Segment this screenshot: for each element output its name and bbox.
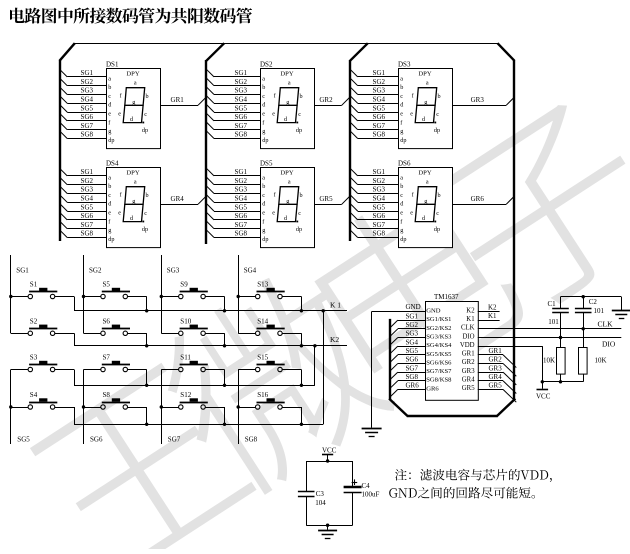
- svg-text:SG1: SG1: [16, 266, 29, 274]
- svg-text:S4: S4: [30, 391, 38, 399]
- svg-text:SG6/KS6: SG6/KS6: [426, 359, 452, 366]
- svg-text:SG8/KS8: SG8/KS8: [426, 377, 452, 384]
- svg-text:CLK: CLK: [598, 320, 614, 329]
- svg-text:SG7: SG7: [406, 364, 419, 372]
- svg-text:SG7: SG7: [235, 122, 248, 130]
- svg-text:a: a: [426, 179, 429, 186]
- svg-text:C3: C3: [316, 490, 325, 498]
- svg-text:c: c: [436, 111, 439, 118]
- svg-text:SG7/KS7: SG7/KS7: [426, 368, 452, 375]
- svg-text:SG5: SG5: [17, 436, 30, 444]
- svg-text:DS1: DS1: [106, 61, 119, 69]
- svg-text:S11: S11: [180, 354, 191, 362]
- svg-text:S12: S12: [180, 391, 191, 399]
- svg-text:dp: dp: [434, 127, 440, 134]
- svg-text:DPY: DPY: [418, 71, 431, 78]
- svg-text:SG2: SG2: [81, 78, 94, 86]
- svg-text:GR2: GR2: [462, 359, 475, 366]
- svg-text:SG5: SG5: [406, 347, 419, 355]
- svg-text:S13: S13: [257, 281, 268, 289]
- svg-text:SG8: SG8: [373, 131, 386, 139]
- svg-text:S5: S5: [103, 281, 111, 289]
- svg-text:DS3: DS3: [398, 61, 411, 69]
- svg-text:SG5: SG5: [373, 203, 386, 211]
- svg-text:e: e: [262, 210, 265, 217]
- svg-text:a: a: [288, 179, 291, 186]
- svg-text:SG8: SG8: [245, 436, 258, 444]
- svg-text:dp: dp: [108, 236, 114, 243]
- svg-text:SG3: SG3: [373, 87, 386, 95]
- svg-text:SG4: SG4: [81, 96, 94, 104]
- svg-text:GR1: GR1: [462, 351, 475, 358]
- svg-text:S2: S2: [30, 317, 38, 325]
- svg-text:SG8: SG8: [81, 230, 94, 238]
- svg-text:c: c: [436, 210, 439, 217]
- svg-text:c: c: [144, 210, 147, 217]
- svg-text:g: g: [286, 99, 289, 106]
- svg-text:a: a: [108, 174, 111, 181]
- svg-text:101: 101: [548, 318, 559, 326]
- svg-text:g: g: [132, 99, 135, 106]
- svg-text:b: b: [145, 93, 148, 100]
- svg-text:dp: dp: [400, 236, 406, 243]
- svg-text:b: b: [437, 192, 440, 199]
- svg-text:SG4/KS4: SG4/KS4: [426, 342, 452, 349]
- svg-text:SG3/KS3: SG3/KS3: [426, 333, 452, 340]
- svg-text:b: b: [299, 192, 302, 199]
- svg-text:g: g: [286, 198, 289, 205]
- svg-text:GR3: GR3: [471, 96, 485, 104]
- svg-text:S15: S15: [257, 354, 268, 362]
- svg-text:SG3: SG3: [373, 186, 386, 194]
- svg-text:CLK: CLK: [461, 325, 475, 332]
- svg-text:SG1: SG1: [235, 168, 248, 176]
- svg-text:SG2: SG2: [235, 78, 248, 86]
- svg-text:e: e: [262, 111, 265, 118]
- svg-text:g: g: [424, 198, 427, 205]
- svg-text:SG5: SG5: [81, 203, 94, 211]
- svg-text:S1: S1: [30, 281, 38, 289]
- svg-text:SG6: SG6: [235, 212, 248, 220]
- svg-text:SG1: SG1: [81, 69, 94, 77]
- svg-text:SG4: SG4: [373, 96, 386, 104]
- svg-text:dp: dp: [296, 226, 302, 233]
- svg-text:SG7: SG7: [235, 221, 248, 229]
- svg-text:a: a: [134, 80, 137, 87]
- svg-text:SG3: SG3: [81, 186, 94, 194]
- svg-text:GR1: GR1: [171, 96, 185, 104]
- svg-text:SG2: SG2: [406, 321, 419, 329]
- svg-text:a: a: [262, 174, 265, 181]
- svg-text:GR2: GR2: [319, 96, 333, 104]
- svg-text:DPY: DPY: [126, 71, 139, 78]
- svg-text:101: 101: [594, 307, 605, 315]
- svg-text:K1: K1: [466, 316, 474, 323]
- svg-text:SG2: SG2: [89, 266, 102, 274]
- svg-text:S8: S8: [103, 391, 111, 399]
- svg-text:b: b: [262, 84, 265, 91]
- svg-text:SG8: SG8: [406, 373, 419, 381]
- svg-text:SG3: SG3: [406, 330, 419, 338]
- svg-text:SG2/KS2: SG2/KS2: [426, 325, 451, 332]
- svg-text:104: 104: [315, 499, 326, 507]
- svg-text:SG3: SG3: [235, 87, 248, 95]
- svg-text:c: c: [298, 210, 301, 217]
- svg-text:g: g: [400, 128, 403, 135]
- svg-text:SG1: SG1: [81, 168, 94, 176]
- svg-text:DPY: DPY: [280, 170, 293, 177]
- svg-text:GR6: GR6: [471, 195, 485, 203]
- svg-text:g: g: [424, 99, 427, 106]
- svg-text:b: b: [108, 84, 111, 91]
- svg-text:DS6: DS6: [398, 160, 411, 168]
- svg-text:SG6: SG6: [235, 113, 248, 121]
- svg-text:S14: S14: [257, 317, 268, 325]
- svg-text:dp: dp: [262, 137, 268, 144]
- svg-text:c: c: [108, 192, 111, 199]
- svg-text:b: b: [262, 183, 265, 190]
- svg-text:SG7: SG7: [81, 221, 94, 229]
- svg-text:GR6: GR6: [406, 382, 420, 390]
- svg-text:DPY: DPY: [418, 170, 431, 177]
- svg-text:SG7: SG7: [373, 122, 386, 130]
- svg-text:SG2: SG2: [373, 177, 386, 185]
- svg-text:a: a: [288, 80, 291, 87]
- svg-text:SG6: SG6: [81, 113, 94, 121]
- svg-text:a: a: [262, 75, 265, 82]
- svg-text:b: b: [400, 183, 403, 190]
- svg-text:K1: K1: [488, 312, 497, 320]
- svg-text:SG2: SG2: [373, 78, 386, 86]
- svg-text:SG8: SG8: [81, 131, 94, 139]
- svg-text:GR3: GR3: [462, 368, 475, 375]
- svg-text:C1: C1: [548, 300, 557, 308]
- svg-text:GR4: GR4: [489, 373, 503, 381]
- svg-text:SG3: SG3: [235, 186, 248, 194]
- svg-text:GR4: GR4: [171, 195, 185, 203]
- svg-text:SG3: SG3: [81, 87, 94, 95]
- svg-text:SG6: SG6: [373, 113, 386, 121]
- svg-text:g: g: [262, 128, 265, 135]
- svg-text:GR4: GR4: [462, 377, 475, 384]
- svg-text:K2: K2: [466, 307, 475, 314]
- svg-text:VDD: VDD: [460, 342, 475, 349]
- svg-text:C2: C2: [589, 298, 598, 306]
- svg-text:a: a: [400, 75, 403, 82]
- svg-text:g: g: [108, 227, 111, 234]
- svg-text:dp: dp: [262, 236, 268, 243]
- svg-text:b: b: [400, 84, 403, 91]
- svg-text:e: e: [118, 111, 121, 118]
- svg-text:DS2: DS2: [260, 61, 273, 69]
- svg-text:SG1: SG1: [373, 168, 386, 176]
- svg-text:SG5: SG5: [235, 203, 248, 211]
- svg-text:VCC: VCC: [536, 392, 551, 400]
- svg-text:g: g: [132, 198, 135, 205]
- svg-text:K 1: K 1: [330, 300, 341, 309]
- svg-text:SG6: SG6: [406, 356, 419, 364]
- svg-text:a: a: [426, 80, 429, 87]
- svg-text:SG2: SG2: [235, 177, 248, 185]
- svg-text:SG4: SG4: [406, 338, 419, 346]
- svg-text:GND: GND: [406, 303, 421, 311]
- svg-text:GR1: GR1: [489, 347, 503, 355]
- svg-text:DS5: DS5: [260, 160, 273, 168]
- svg-text:S9: S9: [180, 281, 188, 289]
- svg-text:S10: S10: [180, 317, 191, 325]
- svg-text:DIO: DIO: [463, 333, 475, 340]
- svg-text:e: e: [410, 111, 413, 118]
- svg-text:b: b: [108, 183, 111, 190]
- svg-text:SG3: SG3: [167, 266, 180, 274]
- svg-text:GR2: GR2: [489, 356, 503, 364]
- svg-text:10K: 10K: [543, 357, 555, 365]
- svg-text:e: e: [118, 210, 121, 217]
- svg-text:S7: S7: [103, 354, 111, 362]
- svg-text:K2: K2: [488, 303, 497, 311]
- svg-text:dp: dp: [142, 226, 148, 233]
- svg-text:e: e: [410, 210, 413, 217]
- svg-text:SG4: SG4: [244, 266, 257, 274]
- svg-text:SG1: SG1: [373, 69, 386, 77]
- svg-text:GND: GND: [426, 308, 441, 315]
- svg-text:SG4: SG4: [235, 96, 248, 104]
- svg-text:DIO: DIO: [602, 340, 616, 349]
- svg-text:GR5: GR5: [319, 195, 333, 203]
- svg-text:b: b: [437, 93, 440, 100]
- svg-text:g: g: [108, 128, 111, 135]
- svg-text:SG6: SG6: [90, 436, 103, 444]
- svg-text:SG7: SG7: [81, 122, 94, 130]
- svg-text:DPY: DPY: [280, 71, 293, 78]
- svg-text:c: c: [400, 93, 403, 100]
- svg-text:e: e: [400, 210, 403, 217]
- svg-text:SG1: SG1: [235, 69, 248, 77]
- svg-text:SG7: SG7: [168, 436, 181, 444]
- svg-text:c: c: [298, 111, 301, 118]
- svg-text:b: b: [299, 93, 302, 100]
- svg-text:SG4: SG4: [235, 195, 248, 203]
- svg-text:SG8: SG8: [235, 230, 248, 238]
- svg-text:SG6: SG6: [81, 212, 94, 220]
- svg-text:TM1637: TM1637: [434, 293, 459, 301]
- svg-text:dp: dp: [296, 127, 302, 134]
- svg-text:SG5: SG5: [235, 104, 248, 112]
- svg-text:g: g: [400, 227, 403, 234]
- svg-text:c: c: [108, 93, 111, 100]
- svg-text:a: a: [134, 179, 137, 186]
- svg-text:SG1/KS1: SG1/KS1: [426, 316, 451, 323]
- svg-text:DPY: DPY: [126, 170, 139, 177]
- svg-text:GR3: GR3: [489, 364, 503, 372]
- svg-text:VCC: VCC: [322, 446, 337, 454]
- svg-text:DS4: DS4: [106, 160, 119, 168]
- svg-text:e: e: [108, 210, 111, 217]
- svg-text:SG8: SG8: [235, 131, 248, 139]
- svg-text:SG8: SG8: [373, 230, 386, 238]
- svg-text:dp: dp: [142, 127, 148, 134]
- svg-text:S16: S16: [257, 391, 268, 399]
- svg-text:e: e: [272, 111, 275, 118]
- svg-text:SG4: SG4: [81, 195, 94, 203]
- svg-text:SG1: SG1: [406, 312, 419, 320]
- svg-text:e: e: [108, 111, 111, 118]
- svg-text:SG5/KS5: SG5/KS5: [426, 351, 452, 358]
- svg-text:C4: C4: [362, 482, 371, 490]
- svg-text:dp: dp: [108, 137, 114, 144]
- svg-text:SG5: SG5: [373, 104, 386, 112]
- svg-text:g: g: [262, 227, 265, 234]
- svg-text:a: a: [108, 75, 111, 82]
- svg-text:10K: 10K: [595, 357, 607, 365]
- svg-text:dp: dp: [400, 137, 406, 144]
- svg-text:GR5: GR5: [489, 382, 503, 390]
- svg-text:b: b: [145, 192, 148, 199]
- svg-text:S3: S3: [30, 354, 38, 362]
- svg-text:dp: dp: [434, 226, 440, 233]
- svg-text:SG7: SG7: [373, 221, 386, 229]
- svg-text:SG5: SG5: [81, 104, 94, 112]
- svg-text:c: c: [400, 192, 403, 199]
- svg-text:e: e: [272, 210, 275, 217]
- svg-text:SG4: SG4: [373, 195, 386, 203]
- svg-text:a: a: [400, 174, 403, 181]
- svg-text:100uF: 100uF: [362, 491, 380, 499]
- svg-text:S6: S6: [103, 317, 111, 325]
- svg-text:e: e: [400, 111, 403, 118]
- svg-text:SG6: SG6: [373, 212, 386, 220]
- svg-text:c: c: [144, 111, 147, 118]
- svg-text:c: c: [262, 192, 265, 199]
- svg-text:c: c: [262, 93, 265, 100]
- svg-text:GR6: GR6: [426, 385, 439, 392]
- svg-text:GR5: GR5: [462, 385, 475, 392]
- svg-text:SG2: SG2: [81, 177, 94, 185]
- svg-text:K2: K2: [330, 335, 339, 344]
